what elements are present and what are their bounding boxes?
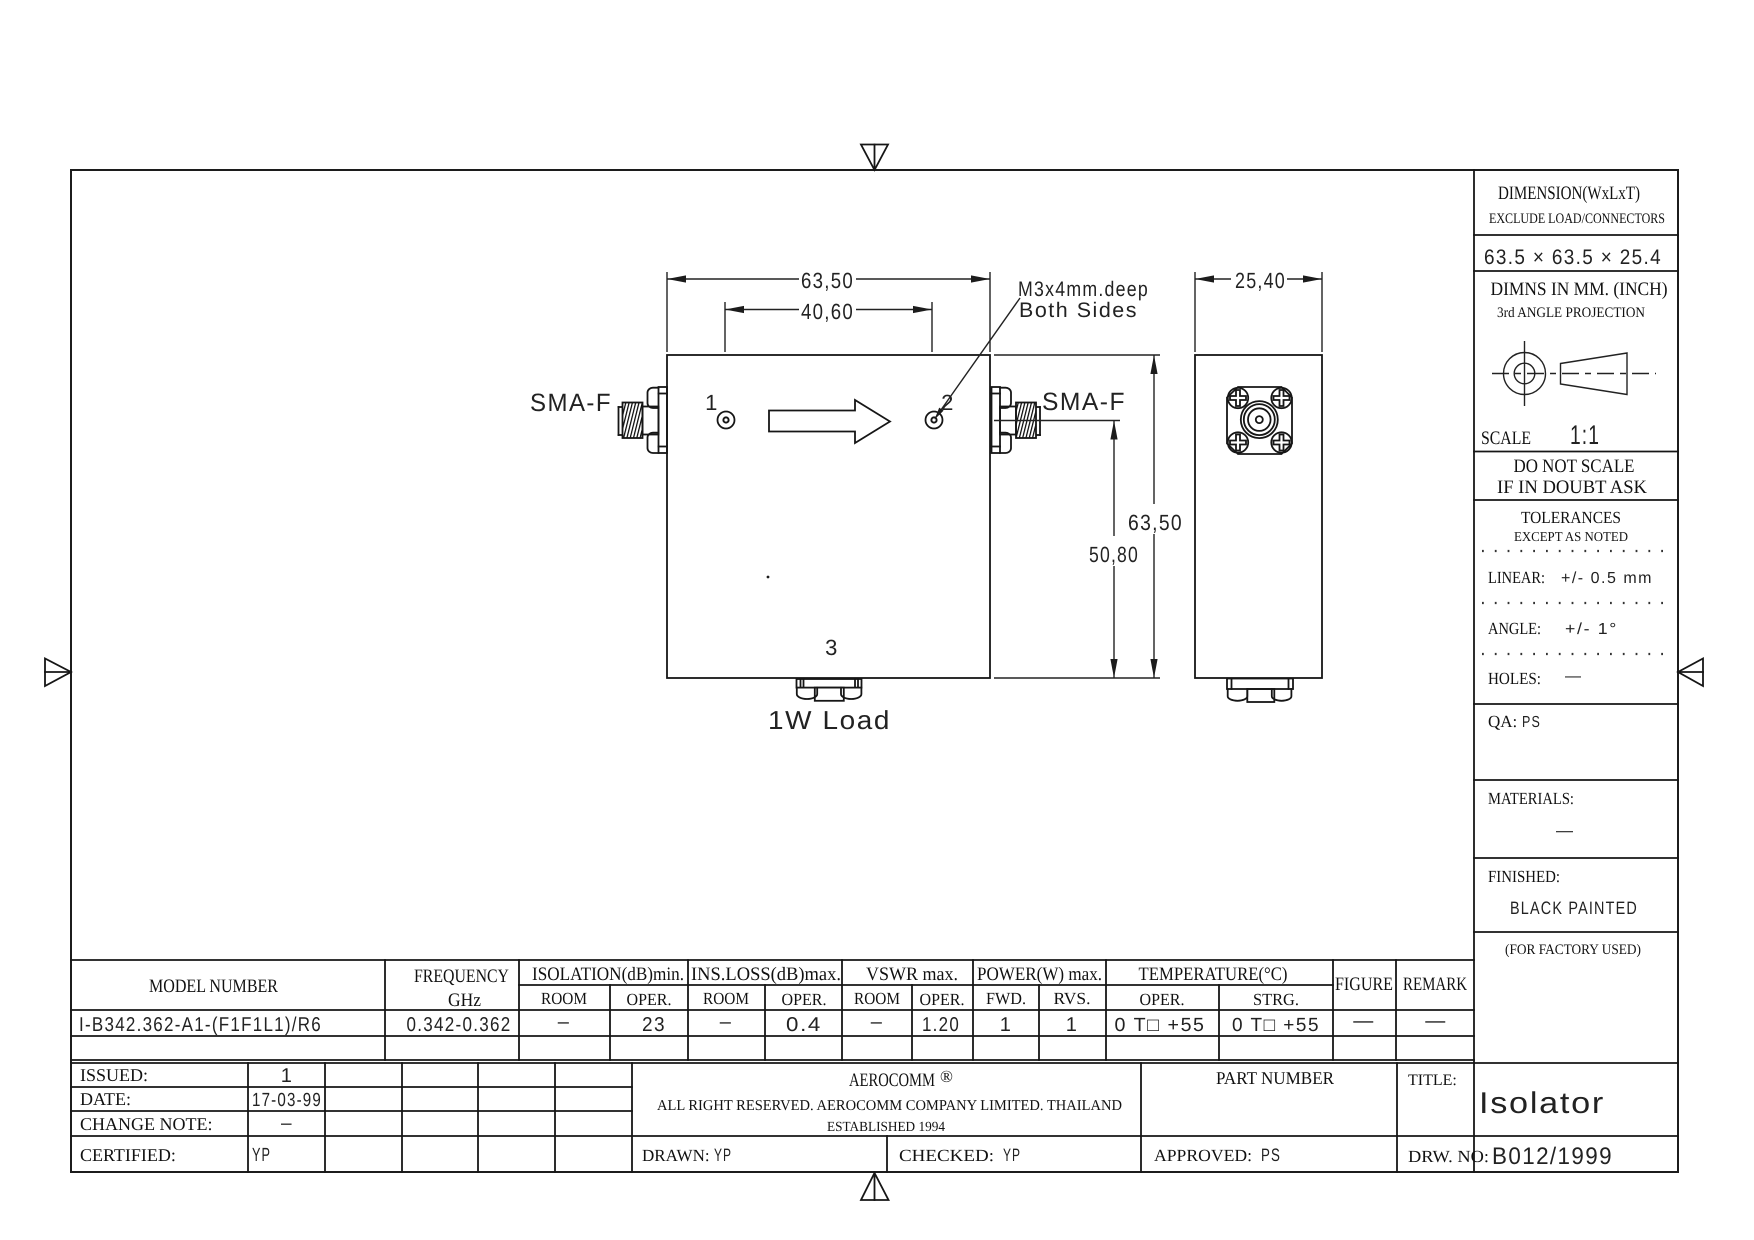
svg-text:1: 1 xyxy=(1000,1014,1013,1036)
svg-text:3rd ANGLE PROJECTION: 3rd ANGLE PROJECTION xyxy=(1497,305,1645,321)
svg-text:DIMNS IN MM. (INCH): DIMNS IN MM. (INCH) xyxy=(1491,279,1668,300)
svg-text:3: 3 xyxy=(825,635,839,660)
svg-text:B012/1999: B012/1999 xyxy=(1492,1143,1613,1170)
svg-text:DIMENSION(WxLxT): DIMENSION(WxLxT) xyxy=(1498,183,1640,204)
svg-text:APPROVED:: APPROVED: xyxy=(1154,1146,1252,1165)
svg-text:RVS.: RVS. xyxy=(1054,989,1091,1008)
svg-text:23: 23 xyxy=(642,1014,666,1036)
svg-text:–: – xyxy=(281,1113,293,1134)
svg-text:ROOM: ROOM xyxy=(703,989,749,1008)
svg-text:—: — xyxy=(1556,821,1575,840)
svg-text:(FOR FACTORY USED): (FOR FACTORY USED) xyxy=(1505,942,1641,958)
svg-text:PS: PS xyxy=(1522,714,1541,731)
svg-text:CHECKED:: CHECKED: xyxy=(899,1146,994,1165)
svg-text:POWER(W) max.: POWER(W) max. xyxy=(977,964,1102,985)
svg-text:1: 1 xyxy=(281,1065,294,1087)
svg-text:DRW. NO:: DRW. NO: xyxy=(1408,1147,1489,1166)
svg-text:PS: PS xyxy=(1261,1145,1281,1165)
svg-text:LINEAR:: LINEAR: xyxy=(1488,568,1545,587)
svg-text:QA:: QA: xyxy=(1488,712,1517,731)
svg-text:–: – xyxy=(558,1011,571,1033)
svg-text:SCALE: SCALE xyxy=(1481,428,1531,449)
svg-text:OPER.: OPER. xyxy=(627,990,672,1009)
svg-text:VSWR max.: VSWR max. xyxy=(866,964,958,985)
svg-text:INS.LOSS(dB)max.: INS.LOSS(dB)max. xyxy=(691,964,841,985)
svg-text:ESTABLISHED 1994: ESTABLISHED 1994 xyxy=(827,1120,945,1135)
svg-text:FIGURE: FIGURE xyxy=(1335,974,1393,995)
svg-text:ISOLATION(dB)min.: ISOLATION(dB)min. xyxy=(532,964,684,985)
svg-text:GHz: GHz xyxy=(448,990,481,1011)
svg-text:OPER.: OPER. xyxy=(1140,990,1185,1009)
svg-text:1.20: 1.20 xyxy=(922,1014,960,1036)
svg-text:ANGLE:: ANGLE: xyxy=(1488,619,1541,638)
svg-text:PART NUMBER: PART NUMBER xyxy=(1216,1068,1334,1088)
svg-text:+/- 0.5 mm: +/- 0.5 mm xyxy=(1561,570,1653,587)
svg-text:17-03-99: 17-03-99 xyxy=(252,1090,322,1111)
svg-text:–: – xyxy=(720,1011,733,1033)
svg-text:MATERIALS:: MATERIALS: xyxy=(1488,789,1574,808)
svg-text:TOLERANCES: TOLERANCES xyxy=(1521,508,1621,527)
svg-text:FINISHED:: FINISHED: xyxy=(1488,867,1560,886)
svg-text:1: 1 xyxy=(705,390,719,415)
svg-text:0.342-0.362: 0.342-0.362 xyxy=(407,1014,512,1036)
svg-text:BLACK PAINTED: BLACK PAINTED xyxy=(1510,898,1638,918)
svg-text:YP: YP xyxy=(714,1145,732,1165)
svg-text:63,50: 63,50 xyxy=(1128,510,1183,535)
svg-text:STRG.: STRG. xyxy=(1253,990,1299,1009)
svg-text:TITLE:: TITLE: xyxy=(1408,1072,1457,1089)
svg-text:®: ® xyxy=(940,1067,953,1086)
svg-text:Isolator: Isolator xyxy=(1479,1087,1605,1120)
svg-text:63.5 × 63.5 × 25.4: 63.5 × 63.5 × 25.4 xyxy=(1484,246,1662,269)
svg-text:63,50: 63,50 xyxy=(801,268,854,293)
svg-text:DATE:: DATE: xyxy=(80,1089,131,1109)
svg-text:FREQUENCY: FREQUENCY xyxy=(414,966,509,987)
svg-text:REMARK: REMARK xyxy=(1403,974,1467,995)
svg-text:SMA-F: SMA-F xyxy=(1042,388,1126,416)
svg-text:+/- 1°: +/- 1° xyxy=(1565,621,1618,638)
svg-text:—: — xyxy=(1565,668,1583,685)
svg-text:1:1: 1:1 xyxy=(1570,420,1600,450)
svg-text:SMA-F: SMA-F xyxy=(530,389,612,417)
svg-text:EXCEPT AS NOTED: EXCEPT AS NOTED xyxy=(1514,529,1628,544)
svg-text:0 T□ +55: 0 T□ +55 xyxy=(1232,1015,1320,1036)
svg-text:–: – xyxy=(871,1011,884,1033)
svg-text:YP: YP xyxy=(252,1145,271,1166)
svg-text:OPER.: OPER. xyxy=(782,990,827,1009)
svg-text:AEROCOMM: AEROCOMM xyxy=(849,1070,935,1091)
svg-text:I-B342.362-A1-(F1F1L1)/R6: I-B342.362-A1-(F1F1L1)/R6 xyxy=(79,1014,322,1036)
svg-text:TEMPERATURE(°C): TEMPERATURE(°C) xyxy=(1139,964,1288,985)
svg-text:Both Sides: Both Sides xyxy=(1019,299,1138,322)
svg-text:FWD.: FWD. xyxy=(986,989,1026,1008)
svg-text:DO NOT SCALE: DO NOT SCALE xyxy=(1514,456,1635,477)
svg-text:IF IN DOUBT ASK: IF IN DOUBT ASK xyxy=(1497,477,1647,498)
svg-text:CHANGE NOTE:: CHANGE NOTE: xyxy=(80,1114,213,1134)
svg-text:50,80: 50,80 xyxy=(1089,542,1139,567)
svg-text:M3x4mm.deep: M3x4mm.deep xyxy=(1018,278,1149,301)
svg-text:OPER.: OPER. xyxy=(920,990,965,1009)
svg-text:DRAWN:: DRAWN: xyxy=(642,1146,710,1165)
svg-text:0 T□ +55: 0 T□ +55 xyxy=(1115,1015,1206,1036)
svg-text:25,40: 25,40 xyxy=(1235,268,1286,293)
svg-text:0.4: 0.4 xyxy=(786,1014,822,1036)
svg-text:YP: YP xyxy=(1003,1145,1021,1165)
svg-text:—: — xyxy=(1425,1010,1447,1032)
svg-text:—: — xyxy=(1353,1010,1375,1032)
svg-text:1: 1 xyxy=(1066,1014,1079,1036)
svg-text:EXCLUDE LOAD/CONNECTORS: EXCLUDE LOAD/CONNECTORS xyxy=(1489,211,1665,227)
svg-text:ROOM: ROOM xyxy=(854,989,900,1008)
svg-text:ROOM: ROOM xyxy=(541,989,587,1008)
svg-text:40,60: 40,60 xyxy=(801,299,854,324)
svg-text:ISSUED:: ISSUED: xyxy=(80,1065,148,1085)
svg-text:MODEL NUMBER: MODEL NUMBER xyxy=(149,976,278,997)
svg-text:HOLES:: HOLES: xyxy=(1488,669,1541,688)
svg-text:CERTIFIED:: CERTIFIED: xyxy=(80,1145,176,1165)
svg-text:ALL RIGHT RESERVED. AEROCOM: ALL RIGHT RESERVED. AEROCOMM COMPANY LIM… xyxy=(657,1098,1122,1114)
svg-text:1W Load: 1W Load xyxy=(768,705,891,735)
